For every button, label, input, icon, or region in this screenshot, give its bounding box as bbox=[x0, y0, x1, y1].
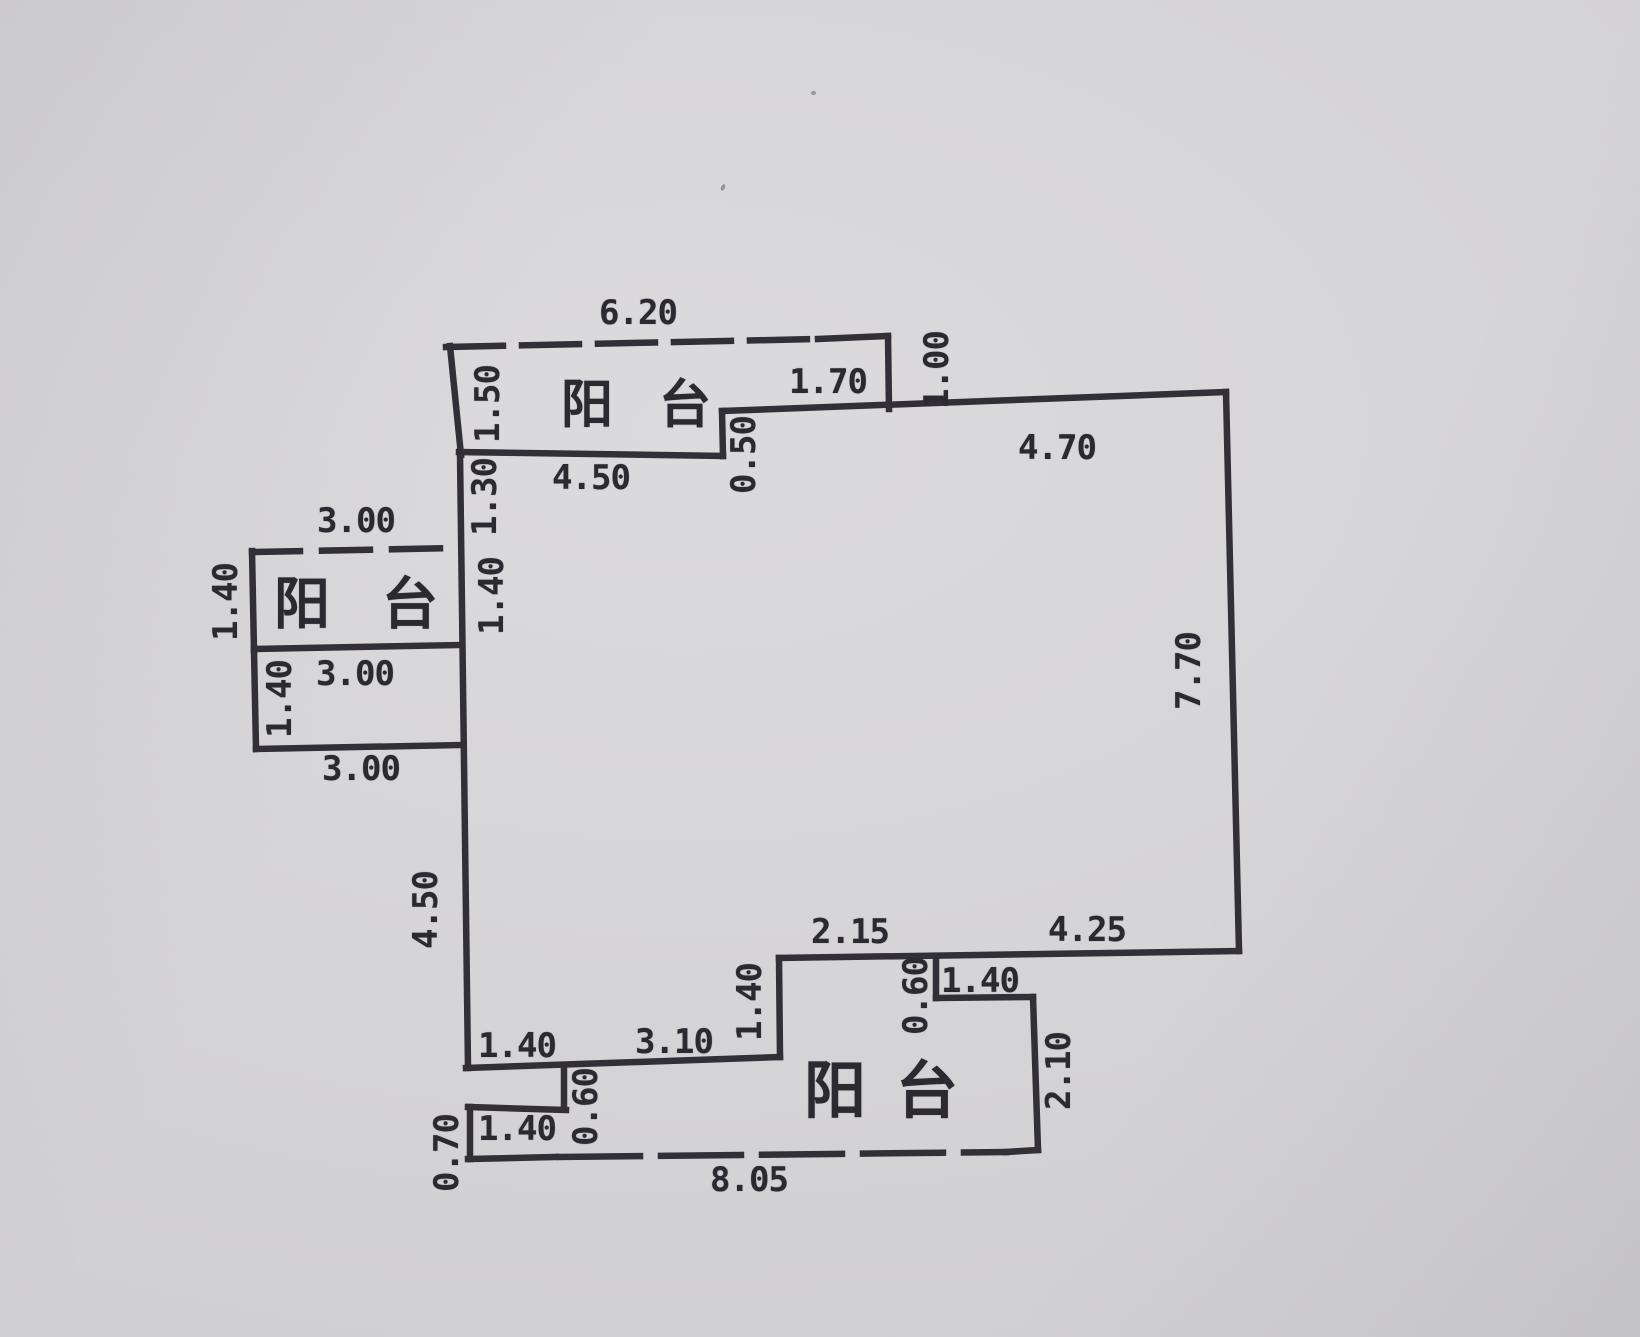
floor-plan-lines bbox=[0, 0, 1640, 1337]
dim-bottom-step: 1.40 bbox=[730, 963, 770, 1041]
house-bottom-step-wall bbox=[779, 958, 780, 1057]
top-balcony-left-wall bbox=[450, 346, 461, 455]
dim-top-balcony-right: 1.00 bbox=[917, 331, 957, 409]
bottom-balcony-label: 阳台 bbox=[804, 1040, 988, 1130]
house-bottom-right-wall bbox=[779, 951, 1239, 958]
dim-bottom-right-seg2: 4.25 bbox=[1048, 910, 1126, 950]
dim-left-balcony-top: 3.00 bbox=[317, 501, 395, 541]
dim-bottom-balcony-step-height: 0.60 bbox=[896, 957, 936, 1035]
dim-porch-left: 0.70 bbox=[427, 1114, 467, 1192]
porch-bottom-wall bbox=[468, 1157, 556, 1159]
left-balcony-left-wall bbox=[252, 551, 254, 651]
dim-left-balcony-bottom: 3.00 bbox=[316, 654, 394, 694]
house-left-wall bbox=[460, 454, 468, 1068]
dim-porch-step: 0.60 bbox=[566, 1068, 606, 1146]
dim-porch-width: 1.40 bbox=[478, 1109, 556, 1149]
dim-right-wall: 7.70 bbox=[1169, 632, 1209, 710]
dim-top-wall-left: 4.50 bbox=[552, 458, 630, 498]
floor-plan-photo: 阳台 阳台 阳台 6.20 1.70 4.50 4.70 3.00 3.00 3… bbox=[0, 0, 1640, 1337]
dim-annex-bottom: 3.00 bbox=[322, 749, 400, 789]
dim-top-balcony-left: 1.50 bbox=[468, 365, 508, 443]
left-annex-left-wall bbox=[254, 651, 256, 749]
top-balcony-top-dashed-wall bbox=[446, 339, 818, 347]
dim-top-balcony-width: 6.20 bbox=[599, 293, 677, 333]
bottom-balcony-bottom-corner bbox=[1006, 1150, 1038, 1152]
dim-bottom-total: 8.05 bbox=[710, 1160, 788, 1200]
left-balcony-top-dashed-wall bbox=[252, 548, 458, 552]
dim-bottom-wall-seg2: 3.10 bbox=[635, 1022, 713, 1062]
dim-left-wall-upper: 1.30 bbox=[465, 458, 505, 536]
paper-speck bbox=[811, 91, 816, 95]
dim-annex-left: 1.40 bbox=[260, 660, 300, 738]
bottom-balcony-right-wall bbox=[1033, 997, 1038, 1150]
dim-left-balcony-left: 1.40 bbox=[206, 563, 246, 641]
dim-top-wall-right: 4.70 bbox=[1018, 428, 1096, 468]
house-top-wall-left bbox=[459, 452, 723, 456]
dim-bottom-wall-seg1: 1.40 bbox=[478, 1026, 556, 1066]
dim-bottom-balcony-right: 2.10 bbox=[1039, 1032, 1079, 1110]
dim-left-wall-lower: 4.50 bbox=[406, 871, 446, 949]
top-balcony-top-solid-wall bbox=[818, 336, 888, 339]
dim-top-step: 0.50 bbox=[724, 416, 764, 494]
left-balcony-label: 阳台 bbox=[274, 560, 490, 641]
dim-bottom-right-seg1: 2.15 bbox=[811, 912, 889, 952]
dim-left-wall-mid: 1.40 bbox=[472, 557, 512, 635]
dim-top-balcony-inner: 1.70 bbox=[789, 362, 867, 402]
dim-bottom-balcony-step-width: 1.40 bbox=[941, 961, 1019, 1001]
top-balcony-right-wall bbox=[888, 336, 889, 409]
house-right-wall bbox=[1226, 392, 1239, 951]
bottom-dashed-wall bbox=[560, 1152, 1006, 1157]
left-balcony-bottom-wall bbox=[254, 645, 461, 649]
